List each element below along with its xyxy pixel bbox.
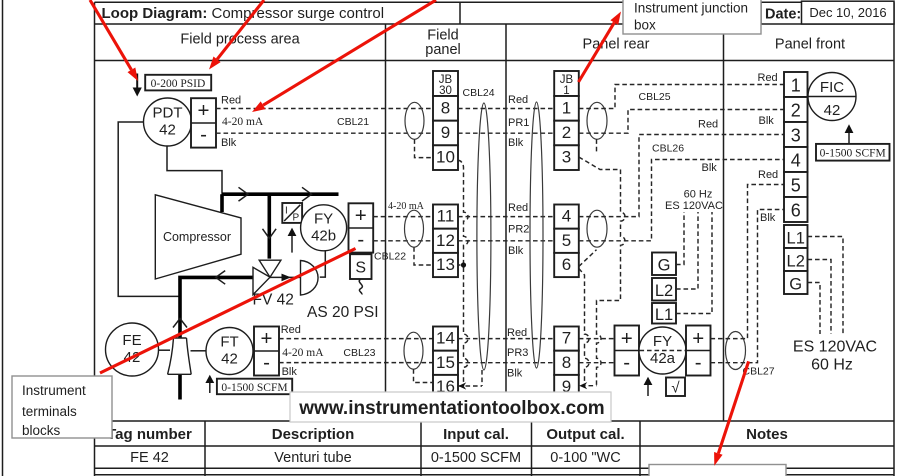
svg-text:-: - <box>263 351 270 374</box>
svg-text:CBL25: CBL25 <box>639 91 671 103</box>
svg-text:Blk: Blk <box>760 212 776 224</box>
svg-text:Blk: Blk <box>282 366 298 378</box>
svg-text:Field process area: Field process area <box>180 32 300 48</box>
svg-text:6: 6 <box>791 201 801 221</box>
svg-text:Blk: Blk <box>508 137 524 149</box>
svg-text:+: + <box>355 204 367 227</box>
svg-text:7: 7 <box>562 329 571 348</box>
svg-text:Blk: Blk <box>702 162 718 174</box>
svg-text:Tag number: Tag number <box>107 426 192 443</box>
svg-text:14: 14 <box>436 329 455 348</box>
svg-text:42b: 42b <box>311 228 336 245</box>
svg-text:-: - <box>695 351 702 374</box>
svg-text:CBL22: CBL22 <box>374 251 406 263</box>
svg-text:8: 8 <box>441 99 450 118</box>
svg-text:4: 4 <box>562 207 571 226</box>
svg-text:S: S <box>355 260 366 277</box>
svg-text:5: 5 <box>562 231 571 250</box>
svg-text:8: 8 <box>562 353 571 372</box>
svg-text:Date:: Date: <box>765 7 801 23</box>
svg-text:box: box <box>634 18 656 33</box>
svg-text:G: G <box>658 257 671 275</box>
svg-text:L1: L1 <box>787 230 805 248</box>
svg-text:G: G <box>789 276 802 294</box>
svg-text:42a: 42a <box>650 350 676 367</box>
svg-text:Notes: Notes <box>746 426 788 443</box>
svg-text:ES 120VAC: ES 120VAC <box>665 200 723 212</box>
svg-text:60 Hz: 60 Hz <box>811 357 853 374</box>
svg-text:-: - <box>357 228 364 251</box>
svg-text:PR2: PR2 <box>508 224 529 236</box>
svg-text:Panel rear: Panel rear <box>583 37 650 53</box>
svg-text:42: 42 <box>159 122 176 139</box>
svg-text:13: 13 <box>436 255 455 274</box>
svg-text:6: 6 <box>562 255 571 274</box>
svg-text:Panel front: Panel front <box>775 37 845 53</box>
svg-text:+: + <box>692 327 704 350</box>
svg-text:0-1500 SCFM: 0-1500 SCFM <box>820 148 886 160</box>
svg-text:FIC: FIC <box>820 79 844 96</box>
svg-text:+: + <box>621 327 633 350</box>
svg-text:0-1500 SCFM: 0-1500 SCFM <box>431 450 521 466</box>
svg-text:FE 42: FE 42 <box>130 450 169 466</box>
svg-text:Loop Diagram: Compressor surge: Loop Diagram: Compressor surge control <box>102 5 385 22</box>
svg-text:CBL24: CBL24 <box>463 87 495 99</box>
svg-text:√: √ <box>671 380 680 397</box>
svg-text:Output cal.: Output cal. <box>546 426 624 443</box>
svg-text:ES 120VAC: ES 120VAC <box>793 339 877 356</box>
svg-text:FY: FY <box>653 333 672 350</box>
svg-text:panel: panel <box>425 42 460 58</box>
svg-text:Blk: Blk <box>508 245 524 257</box>
svg-text:Input cal.: Input cal. <box>443 426 509 443</box>
svg-text:FY: FY <box>314 211 333 228</box>
svg-text:Blk: Blk <box>507 367 523 379</box>
svg-text:Red: Red <box>698 119 718 131</box>
svg-text:Red: Red <box>221 95 241 107</box>
svg-text:CBL26: CBL26 <box>652 143 684 155</box>
svg-text:FE: FE <box>122 332 141 349</box>
svg-text:CBL23: CBL23 <box>343 347 375 359</box>
svg-text:4-20 mA: 4-20 mA <box>282 347 324 359</box>
svg-text:Red: Red <box>508 202 528 214</box>
svg-text:3: 3 <box>562 148 571 167</box>
svg-text:PR3: PR3 <box>507 347 528 359</box>
svg-text:42: 42 <box>824 102 841 119</box>
svg-text:Description: Description <box>272 426 355 443</box>
svg-text:2: 2 <box>562 123 571 142</box>
svg-text:+: + <box>198 99 210 122</box>
svg-text:Blk: Blk <box>759 115 775 127</box>
svg-text:10: 10 <box>436 148 455 167</box>
svg-text:Compressor: Compressor <box>163 230 231 244</box>
svg-text:Red: Red <box>758 169 778 181</box>
svg-text:FT: FT <box>220 334 238 351</box>
svg-text:CBL21: CBL21 <box>337 116 369 128</box>
svg-text:L1: L1 <box>655 306 673 324</box>
svg-text:1: 1 <box>791 76 801 96</box>
svg-text:Venturi tube: Venturi tube <box>274 450 351 466</box>
svg-text:blocks: blocks <box>22 423 61 438</box>
svg-text:L2: L2 <box>787 253 805 271</box>
svg-text:15: 15 <box>436 353 455 372</box>
svg-text:4-20 mA: 4-20 mA <box>222 116 264 128</box>
svg-text:Blk: Blk <box>221 137 237 149</box>
svg-text:Red: Red <box>507 327 527 339</box>
svg-text:-: - <box>623 351 630 374</box>
svg-text:AS 20 PSI: AS 20 PSI <box>307 304 379 321</box>
svg-text:1: 1 <box>562 99 571 118</box>
svg-text:42: 42 <box>221 351 238 368</box>
svg-text:12: 12 <box>436 231 455 250</box>
svg-text:+: + <box>261 327 273 350</box>
svg-text:4-20 mA: 4-20 mA <box>388 201 425 212</box>
svg-text:11: 11 <box>437 207 455 226</box>
svg-text:Red: Red <box>281 324 301 336</box>
svg-text:Instrument: Instrument <box>22 383 86 398</box>
svg-text:60 Hz: 60 Hz <box>684 189 713 201</box>
svg-text:PDT: PDT <box>153 105 183 122</box>
svg-text:-: - <box>200 123 207 146</box>
svg-text:P: P <box>293 213 300 224</box>
svg-text:5: 5 <box>791 176 801 196</box>
svg-text:Red: Red <box>758 72 778 84</box>
svg-text:terminals: terminals <box>22 404 77 419</box>
svg-text:4: 4 <box>791 151 801 171</box>
svg-text:www.instrumentationtoolbox.com: www.instrumentationtoolbox.com <box>298 398 604 419</box>
svg-text:Red: Red <box>508 94 528 106</box>
svg-text:0-200 PSID: 0-200 PSID <box>151 78 206 90</box>
svg-text:Instrument junction: Instrument junction <box>634 1 748 16</box>
svg-text:9: 9 <box>441 123 450 142</box>
svg-text:Dec 10, 2016: Dec 10, 2016 <box>809 5 886 20</box>
svg-text:2: 2 <box>791 101 801 121</box>
svg-text:0-1500 SCFM: 0-1500 SCFM <box>221 382 287 394</box>
svg-text:3: 3 <box>791 126 801 146</box>
svg-text:I: I <box>285 206 288 217</box>
svg-text:0-100 "WC: 0-100 "WC <box>550 450 620 466</box>
svg-text:PR1: PR1 <box>508 117 529 129</box>
svg-text:L2: L2 <box>655 282 673 300</box>
